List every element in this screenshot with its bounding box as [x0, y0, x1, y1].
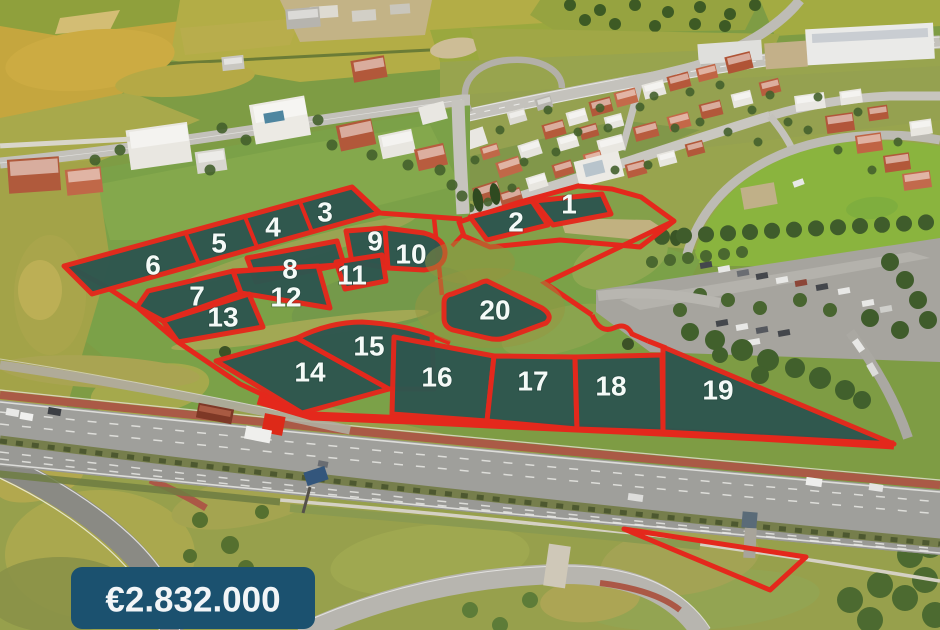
svg-text:19: 19	[702, 375, 733, 406]
svg-text:17: 17	[517, 366, 548, 397]
svg-text:3: 3	[317, 197, 333, 228]
svg-text:20: 20	[479, 295, 510, 326]
svg-text:12: 12	[270, 282, 301, 313]
svg-text:6: 6	[145, 250, 161, 281]
svg-text:7: 7	[189, 281, 205, 312]
svg-text:13: 13	[207, 302, 238, 333]
svg-text:10: 10	[395, 239, 426, 270]
svg-text:€2.832.000: €2.832.000	[105, 581, 280, 620]
svg-text:4: 4	[265, 212, 281, 243]
svg-text:1: 1	[561, 189, 577, 220]
svg-text:14: 14	[294, 357, 326, 388]
svg-text:2: 2	[508, 207, 524, 238]
svg-text:11: 11	[337, 260, 367, 291]
svg-text:8: 8	[282, 254, 298, 285]
svg-text:18: 18	[595, 371, 626, 402]
svg-text:15: 15	[353, 331, 384, 362]
svg-text:16: 16	[421, 362, 452, 393]
svg-text:5: 5	[211, 228, 227, 259]
svg-text:9: 9	[367, 226, 383, 257]
